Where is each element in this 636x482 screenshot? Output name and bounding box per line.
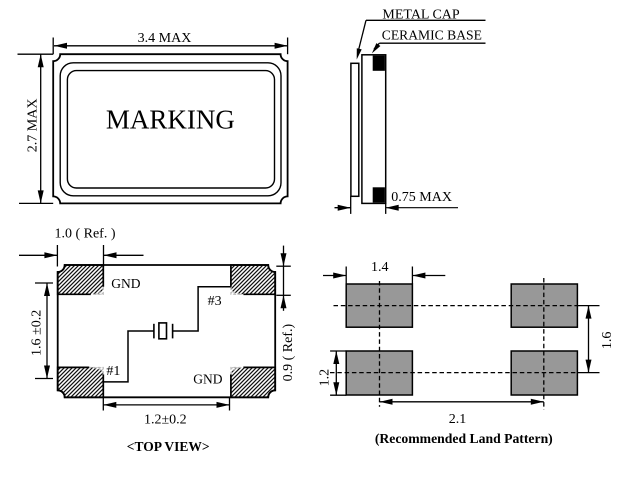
svg-text:1.6: 1.6 [600, 332, 615, 350]
svg-text:0.75 MAX: 0.75 MAX [391, 190, 452, 205]
svg-text:1.0 ( Ref. ): 1.0 ( Ref. ) [54, 226, 115, 241]
svg-text:#3: #3 [208, 294, 222, 309]
svg-text:<TOP VIEW>: <TOP VIEW> [127, 439, 210, 454]
svg-text:GND: GND [111, 276, 140, 291]
svg-text:1.2±0.2: 1.2±0.2 [144, 413, 187, 428]
svg-text:3.4 MAX: 3.4 MAX [138, 31, 192, 46]
svg-text:CERAMIC BASE: CERAMIC BASE [382, 28, 482, 43]
svg-text:#1: #1 [106, 364, 120, 379]
svg-text:1.2: 1.2 [318, 369, 333, 387]
svg-text:GND: GND [193, 372, 222, 387]
svg-text:1.6 ±0.2: 1.6 ±0.2 [29, 310, 44, 356]
svg-text:2.7 MAX: 2.7 MAX [26, 99, 41, 153]
svg-text:MARKING: MARKING [106, 105, 235, 135]
svg-text:1.4: 1.4 [371, 260, 389, 275]
svg-text:(Recommended Land Pattern): (Recommended Land Pattern) [375, 431, 553, 447]
svg-text:0.9 ( Ref.): 0.9 ( Ref.) [281, 323, 296, 381]
svg-text:2.1: 2.1 [449, 412, 467, 427]
